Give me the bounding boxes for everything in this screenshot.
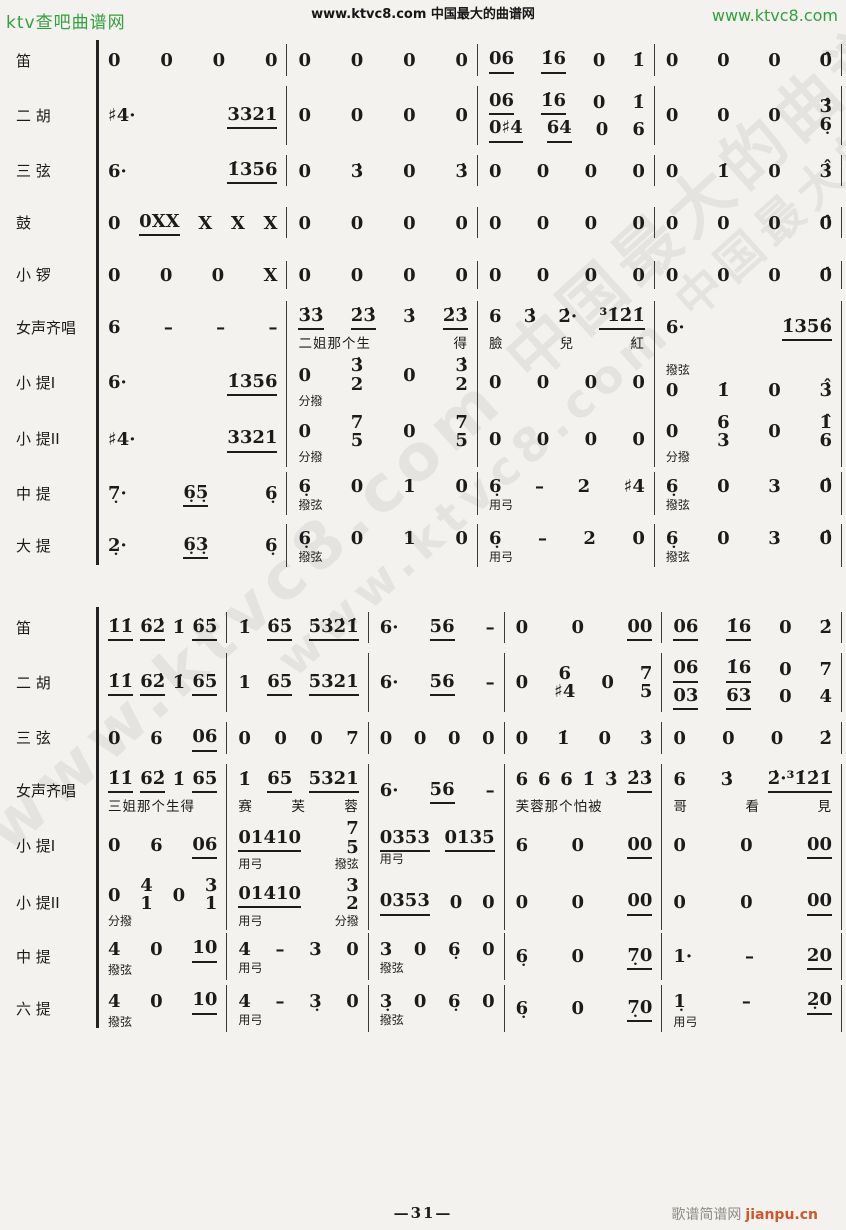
note-token: 0 — [403, 364, 416, 387]
score-sheet: 笛00000000061̇601̇0000̂二 胡♯4·33210000061̇… — [0, 34, 846, 1064]
note-token: 0 — [351, 475, 364, 498]
measure: 1·–20 — [662, 933, 842, 979]
note-token: 06 — [192, 833, 217, 859]
measure: 4010撥弦 — [97, 985, 227, 1031]
note-token: 3 — [717, 432, 730, 450]
note-token: 3321 — [227, 426, 277, 452]
measure: 0000 — [287, 86, 477, 145]
note-token: 0353 — [380, 889, 430, 915]
note-token: 5 — [351, 432, 364, 450]
note-token: 1̇6 — [541, 47, 566, 73]
note-token: 0 — [537, 160, 550, 183]
technique-label-word: 分撥 — [298, 395, 322, 409]
measure: 6·1̇356̂ — [655, 301, 842, 354]
note-token: 7 — [346, 727, 359, 750]
lyric-text-word: 蓉 — [344, 795, 359, 815]
system-2: 笛1̇1̇6̇2̇1̇6̇5̇1̇6̇5̇5̇3̇2̇1̇6·56–000006… — [0, 601, 842, 1034]
measures: 6·1̇35603̇203̇2分撥0000撥弦01̇03̇̂ — [97, 354, 842, 411]
technique-label-word: 用弓 — [380, 853, 404, 867]
note-token: 0 — [779, 658, 792, 681]
part-label: 小 提I — [0, 835, 97, 856]
lyric-text: 二姐那个生得 — [298, 332, 467, 352]
measure: 6̣–2♯4用弓 — [478, 472, 655, 515]
technique-label-word: 分撥 — [108, 915, 132, 929]
note-token: 2 — [351, 376, 364, 394]
note-token: 00 — [807, 889, 832, 915]
note-line: 0000 — [673, 833, 832, 859]
chord-stack: 75 — [455, 414, 468, 451]
note-token: 0 — [516, 891, 529, 914]
note-token: 4 — [238, 938, 251, 961]
note-token: 65 — [267, 670, 292, 696]
note-token: 0 — [768, 379, 781, 402]
note-token: 0 — [298, 49, 311, 72]
measure: 3̣06̣0撥弦 — [369, 985, 505, 1031]
technique-label-word: 撥弦 — [380, 962, 404, 976]
note-token: 3̇ — [640, 727, 653, 750]
note-line: 1̇655321 — [238, 767, 358, 793]
footer-site-url[interactable]: jianpu.cn — [745, 1207, 818, 1223]
note-token: 0 — [414, 990, 427, 1013]
note-token: 06 — [673, 615, 698, 641]
measure: 0000 — [287, 44, 477, 75]
measure: 00XXXXX — [97, 207, 287, 238]
note-token: 0 — [108, 212, 121, 235]
measure: 6̣–20用弓 — [478, 524, 655, 567]
measure: 0000 — [505, 874, 663, 931]
measures: 1̇1̇62̇1̇6516553216·56–06♯4075061̇607036… — [97, 653, 842, 712]
note-token: X — [264, 212, 278, 235]
note-line: 0000 — [298, 264, 467, 287]
measure: 01̇03̇ — [505, 722, 663, 753]
measure: 03̇03̇ — [287, 155, 477, 186]
measure: 4010撥弦 — [97, 933, 227, 979]
note-token: 2 — [578, 475, 591, 498]
note-token: 0 — [632, 264, 645, 287]
technique-label-word: 撥弦 — [666, 551, 690, 565]
note-line: 00XXXXX — [108, 210, 277, 236]
measures: 7̣·6̣5̣6̣6̣010撥弦6̣–2♯4用弓6̣030̂撥弦 — [97, 472, 842, 515]
note-token: 1 — [238, 671, 251, 694]
note-token: 0 — [768, 160, 781, 183]
note-line: 0000 — [298, 212, 467, 235]
note-token: – — [742, 990, 751, 1013]
note-token: 62̇ — [140, 767, 165, 793]
measure: 1̇6̇5̇5̇3̇2̇1̇ — [227, 612, 368, 643]
note-token: 6̣ — [298, 527, 311, 550]
technique-label-word: 撥弦 — [335, 858, 359, 872]
measure: 6·56– — [369, 764, 505, 817]
note-token: 0 — [571, 616, 584, 639]
note-token: 0 — [482, 938, 495, 961]
note-line: 0000 — [298, 104, 467, 127]
note-token: 1̇6 — [726, 656, 751, 682]
note-line: 6·56– — [380, 670, 495, 696]
note-line: 0000 — [489, 160, 645, 183]
note-token: 2̇ — [819, 727, 832, 750]
part-row: 中 提4010撥弦4–30用弓306̣0撥弦6̣07̣01·–20 — [0, 930, 842, 982]
note-token: 0♯4 — [489, 116, 523, 142]
lyric-text-word: 芙蓉那个怕被 — [516, 795, 603, 815]
technique-label: 用弓 — [489, 551, 645, 565]
note-token: 0 — [351, 104, 364, 127]
note-token: – — [276, 990, 285, 1013]
note-line: 6̣–2♯4 — [489, 475, 645, 498]
note-token: 1̇ — [238, 768, 251, 791]
note-token: 1 — [205, 895, 218, 913]
lyric-text-word: 哥 — [673, 795, 688, 815]
technique-label: 分撥 — [298, 451, 467, 465]
measure: 4–30用弓 — [227, 933, 368, 979]
note-line: 3̣06̣0 — [380, 990, 495, 1013]
note-line: 03̇03̇ — [298, 160, 467, 183]
note-token: – — [538, 527, 547, 550]
note-token: 10 — [192, 988, 217, 1014]
measures: 6–––3̇3̇2̇3̇3̇2̇3̇二姐那个生得63̇2̇·³1̇2̇1̇臉兒紅… — [97, 301, 842, 354]
note-token: 3̇̂ — [819, 379, 832, 402]
note-line: 0141032 — [238, 877, 358, 914]
measure: 0000 — [478, 354, 655, 411]
note-token: 4 — [819, 685, 832, 708]
note-line: 0000 — [516, 889, 653, 915]
note-token: 3̣ — [309, 990, 322, 1013]
system-start-barline — [96, 607, 99, 1028]
note-token: 0 — [448, 727, 461, 750]
note-token: 0 — [298, 212, 311, 235]
note-token: 6̣ — [489, 527, 502, 550]
note-line: 6̣07̣0 — [516, 996, 653, 1022]
lyric-text-word: 紅 — [630, 332, 645, 352]
note-line: 0000 — [489, 264, 645, 287]
note-token: 0 — [310, 727, 323, 750]
lyric-text-word: 得 — [453, 332, 468, 352]
note-line: 6––– — [108, 316, 277, 339]
note-line: 0000 — [673, 889, 832, 915]
note-token: 6 — [150, 727, 163, 750]
note-token: 0̂ — [819, 264, 832, 287]
measure: 6·1̇356 — [97, 354, 287, 411]
measure: 061̇607036304 — [662, 653, 842, 712]
note-token: 0 — [673, 891, 686, 914]
note-token: 0̂ — [819, 527, 832, 550]
measure: 6̣010撥弦 — [287, 524, 477, 567]
note-line: 1·–20 — [673, 944, 832, 970]
measure: 0606 — [97, 817, 227, 874]
note-token: 4 — [108, 990, 121, 1013]
measure: 0000 — [662, 874, 842, 931]
note-token: 0 — [779, 685, 792, 708]
note-token: – — [268, 316, 277, 339]
measure: 0000 — [478, 411, 655, 468]
note-line: 036304 — [673, 684, 832, 710]
note-token: 0 — [666, 104, 679, 127]
measure: 1̇1̇6̇2̇1̇6̇5̇ — [97, 612, 227, 643]
note-token: 0 — [585, 160, 598, 183]
note-token: 6̣ — [516, 997, 529, 1020]
technique-label-word: 撥弦 — [298, 551, 322, 565]
measure: 0000 — [97, 44, 287, 75]
note-token: 3̣ — [380, 990, 393, 1013]
measure: 06♯4075 — [505, 653, 663, 712]
note-line: 6·1̇356 — [108, 158, 277, 184]
measure: 0000̂ — [655, 44, 842, 75]
note-token: 6̣ — [265, 534, 278, 557]
part-row: 小 提II041031分撥0141032用弓分撥03530000000000 — [0, 874, 842, 931]
note-token: 0 — [489, 371, 502, 394]
measure: 6̣030̂撥弦 — [655, 472, 842, 515]
measure: 0000 — [287, 207, 477, 238]
note-token: 0 — [666, 420, 679, 443]
technique-label: 撥弦 — [380, 1014, 495, 1028]
note-token: 0 — [351, 212, 364, 235]
note-token: 65 — [267, 767, 292, 793]
note-token: – — [745, 945, 754, 968]
note-token: 1· — [673, 945, 692, 968]
measure: ♯4·3321 — [97, 411, 287, 468]
note-token: 06 — [489, 47, 514, 73]
note-token: 0 — [173, 884, 186, 907]
note-token: 0135 — [445, 826, 495, 852]
note-token: 0 — [455, 527, 468, 550]
note-token: 0 — [108, 727, 121, 750]
note-line: 1̇6̇5̇5̇3̇2̇1̇ — [238, 615, 358, 641]
technique-label-word: 用弓 — [238, 1014, 262, 1028]
note-token: 6̣3̣ — [183, 533, 208, 559]
chord-stack: 31 — [205, 877, 218, 914]
measures: 06060007000001̇03̇0002̇ — [97, 722, 842, 753]
note-token: 3̇3̇ — [298, 304, 323, 330]
note-token: 6· — [108, 160, 127, 183]
note-token: – — [535, 475, 544, 498]
note-line: 1̇1̇62̇1̇65 — [108, 670, 217, 696]
note-token: 1̇1̇ — [108, 670, 133, 696]
system-1: 笛00000000061̇601̇0000̂二 胡♯4·33210000061̇… — [0, 34, 842, 571]
note-token: 1̇ — [632, 49, 645, 72]
note-token: 06 — [192, 725, 217, 751]
lyric-text-word: 臉 — [489, 332, 504, 352]
measure: 000X — [97, 261, 287, 289]
note-token: 00 — [627, 833, 652, 859]
note-token: 0 — [108, 49, 121, 72]
lyric-text-word: 看 — [745, 795, 760, 815]
note-token: 1̇356 — [227, 370, 277, 396]
note-token: 0 — [632, 371, 645, 394]
note-line: 0606 — [108, 725, 217, 751]
technique-label-word: 用弓 — [673, 1016, 697, 1030]
note-line: 63̇2̇·³1̇2̇1̇ — [489, 304, 645, 330]
note-token: 3321 — [227, 103, 277, 129]
technique-label-word: 用弓 — [238, 858, 262, 872]
footer-site-name: 歌谱简谱网 — [671, 1207, 741, 1223]
measure: 0000̂ — [655, 261, 842, 289]
note-line: 4010 — [108, 988, 217, 1014]
note-token: 0 — [403, 160, 416, 183]
note-token: 0 — [150, 938, 163, 961]
note-token: 0 — [666, 49, 679, 72]
note-token: 03 — [673, 684, 698, 710]
note-token: 0 — [298, 104, 311, 127]
note-token: 0 — [160, 264, 173, 287]
note-token: 6 — [489, 305, 502, 328]
technique-label: 用弓 — [238, 962, 358, 976]
note-token: 0 — [108, 884, 121, 907]
note-token: 3̇ — [403, 305, 416, 328]
note-token: 1̇6 — [726, 615, 751, 641]
note-token: 6̣ — [516, 945, 529, 968]
note-token: 1̇356 — [227, 158, 277, 184]
note-token: 0 — [403, 264, 416, 287]
note-line: 01̇03̇ — [516, 727, 653, 750]
note-token: 5̇3̇2̇1̇ — [309, 615, 359, 641]
note-token: 0 — [351, 49, 364, 72]
lyric-text-word: 兒 — [560, 332, 575, 352]
note-token: 0 — [768, 212, 781, 235]
note-token: 6̣ — [666, 527, 679, 550]
note-token: 6· — [666, 316, 685, 339]
note-token: 3̇ — [455, 357, 468, 375]
note-token: – — [216, 316, 225, 339]
measure: 1̇1̇62̇1̇65三姐那个生得 — [97, 764, 227, 817]
note-token: 0 — [593, 49, 606, 72]
technique-label-word: 用弓 — [238, 915, 262, 929]
note-token: 64 — [547, 116, 572, 142]
note-token: 0 — [450, 891, 463, 914]
measure: 63̇2̇·³1̇2̇1̇哥看見 — [662, 764, 842, 817]
note-line: 6̣010 — [298, 527, 467, 550]
note-token: 0 — [403, 104, 416, 127]
note-token: 00 — [807, 833, 832, 859]
note-token: 0 — [666, 160, 679, 183]
measure: 0000̂ — [655, 207, 842, 238]
note-line: 0000̂ — [666, 212, 832, 235]
note-token: 0 — [212, 264, 225, 287]
note-token: 5321 — [309, 670, 359, 696]
chord-stack: 75 — [346, 820, 359, 857]
note-token: 0 — [380, 727, 393, 750]
measure: 061̇602̇ — [662, 612, 842, 643]
technique-label: 撥弦 — [108, 964, 217, 978]
note-token: 2̇·³1̇2̇1̇ — [768, 767, 832, 793]
part-label: 小 提I — [0, 372, 97, 393]
note-token: – — [276, 938, 285, 961]
note-token: 0 — [596, 118, 609, 141]
note-token: 0 — [632, 212, 645, 235]
part-row: 小 提I06060141075用弓撥弦03530135用弓60000000 — [0, 817, 842, 874]
measures: 4010撥弦4–30用弓306̣0撥弦6̣07̣01·–20 — [97, 933, 842, 979]
chord-stack: 3̇2 — [455, 357, 468, 394]
note-line: 075075 — [298, 414, 467, 451]
technique-label: 撥弦 — [298, 551, 467, 565]
chord-stack: 75 — [640, 665, 653, 702]
note-token: 0 — [571, 891, 584, 914]
technique-label: 撥弦 — [666, 551, 832, 565]
technique-label: 撥弦 — [380, 962, 495, 976]
note-token: ³1̇2̇1̇ — [599, 304, 644, 330]
note-token: 56 — [430, 615, 455, 641]
note-token: 1 — [403, 527, 416, 550]
note-token: 0353 — [380, 826, 430, 852]
note-line: 03530135 — [380, 826, 495, 852]
note-token: 3̇ — [455, 160, 468, 183]
note-token: 0 — [351, 527, 364, 550]
note-token: 0 — [414, 727, 427, 750]
note-token: ♯4 — [624, 475, 645, 498]
technique-label-word: 分撥 — [666, 451, 690, 465]
note-token: 0 — [537, 371, 550, 394]
note-token: 0 — [537, 428, 550, 451]
note-token: 1 — [403, 475, 416, 498]
note-token: 6 — [538, 768, 551, 791]
technique-label-word: 撥弦 — [380, 1014, 404, 1028]
measure: 03̇203̇2分撥 — [287, 354, 477, 411]
note-token: 0 — [585, 212, 598, 235]
note-token: 6̣ — [489, 475, 502, 498]
lyric-text: 哥看見 — [673, 795, 832, 815]
lyric-text: 三姐那个生得 — [108, 795, 217, 815]
part-label: 六 提 — [0, 998, 97, 1019]
note-token: 0 — [516, 671, 529, 694]
measure: 2̣·6̣3̣6̣ — [97, 524, 287, 567]
system-start-barline — [96, 40, 99, 565]
note-token: – — [164, 316, 173, 339]
note-token: 0 — [108, 834, 121, 857]
note-token: 6· — [380, 671, 399, 694]
note-token: 0 — [585, 428, 598, 451]
note-token: 0 — [160, 49, 173, 72]
note-token: X — [263, 264, 277, 287]
note-token: 1̇ — [717, 160, 730, 183]
note-token: 2̇ — [819, 616, 832, 639]
measure: 0000 — [287, 261, 477, 289]
note-line: 0000̂ — [666, 264, 832, 287]
measure: 03530135用弓 — [369, 817, 505, 874]
note-token: 6 — [632, 118, 645, 141]
measure: 01̇03̇̂ — [655, 155, 842, 186]
note-line: 0000 — [108, 49, 277, 72]
note-token: 4 — [108, 938, 121, 961]
part-label: 小 提II — [0, 428, 97, 449]
note-line: 0♯46406 — [489, 116, 645, 142]
part-label: 大 提 — [0, 535, 97, 556]
technique-label-word: 分撥 — [335, 915, 359, 929]
note-line: 3̇3̇2̇3̇3̇2̇3̇ — [298, 304, 467, 330]
note-line: 4–3̣0 — [238, 990, 358, 1013]
note-token: 0 — [601, 671, 614, 694]
note-token: 1̇6 — [541, 89, 566, 115]
lyric-text: 芙蓉那个怕被 — [516, 795, 653, 815]
part-label: 三 弦 — [0, 160, 97, 181]
measure: 0000 — [478, 207, 655, 238]
note-line: 01̇03̇̂ — [666, 160, 832, 183]
note-token: 0 — [213, 49, 226, 72]
technique-label: 用弓 — [489, 499, 645, 513]
note-token: 0 — [571, 834, 584, 857]
note-token: 0 — [598, 727, 611, 750]
measures: 2̣·6̣3̣6̣6̣010撥弦6̣–20用弓6̣030̂撥弦 — [97, 524, 842, 567]
measures: 6·1̇35603̇03̇000001̇03̇̂ — [97, 155, 842, 186]
part-row: 笛1̇1̇6̇2̇1̇6̇5̇1̇6̇5̇5̇3̇2̇1̇6·56–000006… — [0, 601, 842, 653]
note-token: 0 — [346, 938, 359, 961]
technique-label: 分撥 — [108, 915, 217, 929]
note-token: 5 — [640, 683, 653, 701]
measures: 1̇1̇62̇1̇65三姐那个生得1̇655321赛芙蓉6·56–6661̇3̇… — [97, 764, 842, 817]
footer-site-link[interactable]: 歌谱简谱网jianpu.cn — [671, 1204, 818, 1224]
note-line: 4–30 — [238, 938, 358, 961]
note-token: 1̇ — [173, 671, 186, 694]
chord-stack: 1̂6 — [819, 414, 832, 451]
site-link-right[interactable]: www.ktvc8.com — [712, 6, 838, 25]
note-token: 0 — [717, 475, 730, 498]
